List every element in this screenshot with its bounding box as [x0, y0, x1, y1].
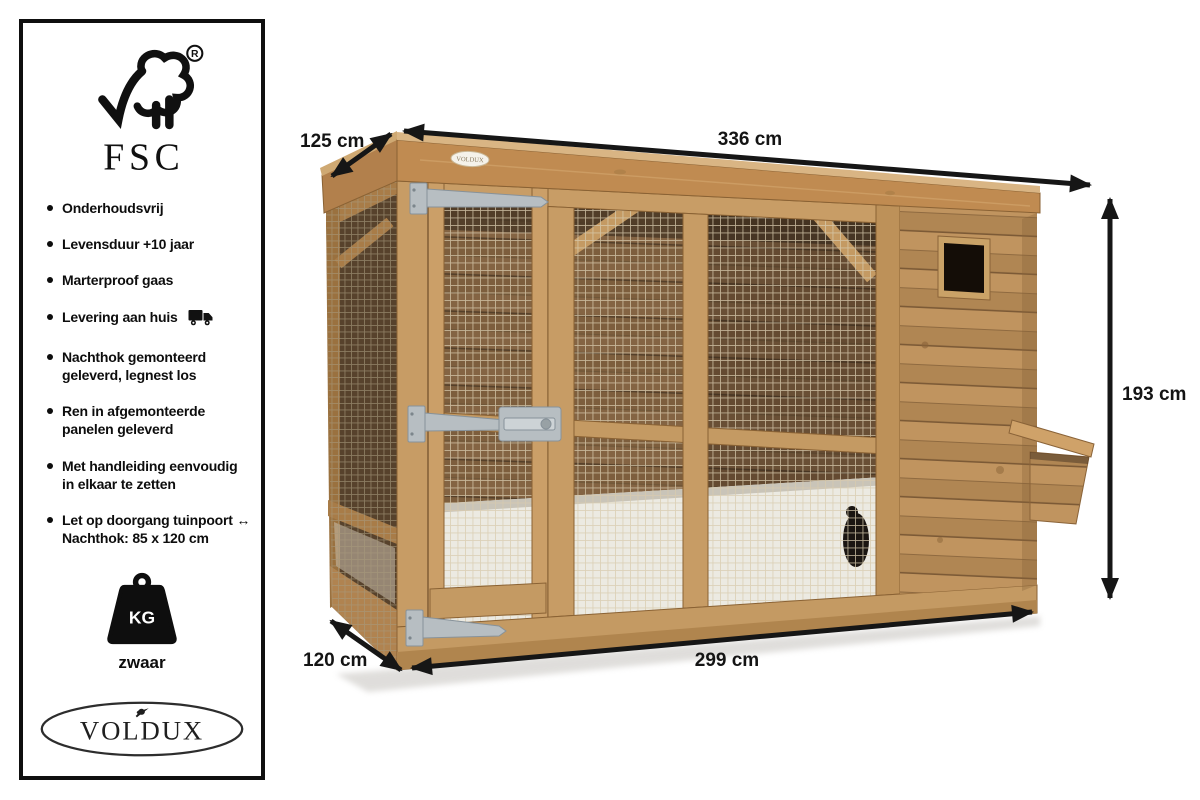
nachthok-wall	[900, 206, 1037, 594]
dimension-label-depth-bottom: 120 cm	[303, 650, 367, 671]
mid-hinge-plate	[408, 406, 425, 442]
post-middle	[683, 213, 708, 608]
coop-side-face	[326, 176, 397, 670]
door-bottom-rail	[430, 583, 546, 619]
dimension-label-depth-top: 125 cm	[300, 131, 364, 152]
latch-knob	[541, 419, 551, 429]
nachthok-window	[938, 236, 990, 300]
dimension-label-height-right: 193 cm	[1122, 384, 1186, 405]
top-hinge-plate	[410, 183, 427, 214]
bottom-hinge-plate	[406, 610, 423, 646]
corner-post	[397, 181, 428, 627]
side-mesh-panel	[326, 176, 397, 670]
dimension-label-width-top: 336 cm	[718, 129, 782, 150]
dimension-label-width-bottom: 299 cm	[695, 650, 759, 671]
svg-text:VOLDUX: VOLDUX	[456, 156, 484, 164]
coop-illustration: VOLDUX 125 cm 336 cm 193 cm 120 cm 299 c…	[0, 0, 1200, 800]
door-hinge-stile	[428, 183, 444, 626]
door-latch-stile	[532, 188, 548, 619]
post-nachthok-edge	[876, 205, 900, 596]
